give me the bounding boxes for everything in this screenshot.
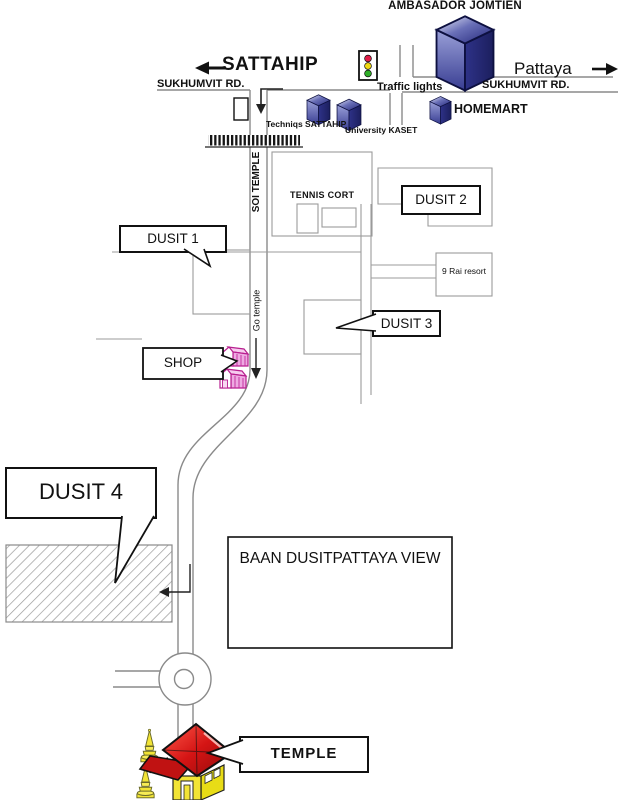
homemart-label: HOMEMART	[454, 103, 528, 116]
direction-east-label: Pattaya	[514, 60, 572, 78]
soi-temple-label: SOI TEMPLE	[252, 150, 264, 214]
tennis-courts	[297, 204, 356, 233]
building-cube-icon-homemart	[430, 96, 451, 124]
dusit4-label: DUSIT 4	[6, 480, 156, 503]
sukhumvit-rd-left-label: SUKHUMVIT RD.	[157, 79, 244, 91]
go-down-arrow-icon	[251, 338, 261, 379]
turn-into-soi-arrow-icon	[256, 89, 283, 114]
arrow-east-icon	[592, 63, 618, 75]
dusit4-land	[6, 545, 172, 622]
dusit3-label: DUSIT 3	[373, 317, 440, 331]
sukhumvit-rd-right-label: SUKHUMVIT RD.	[482, 80, 569, 92]
traffic-lights-label: Traffic lights	[377, 82, 442, 94]
baan-dusitpattaya-view-label: BAAN DUSITPATTAYA VIEW	[228, 551, 452, 567]
bus-stop-icon	[234, 98, 248, 120]
shop-label: SHOP	[143, 356, 223, 370]
direction-map: AMBASADOR JOMTIEN SATTAHIP Pattaya SUKHU…	[0, 0, 618, 800]
railroad-crossing-icon	[205, 135, 303, 147]
go-temple-label: Go temple	[253, 285, 264, 337]
dusit1-label: DUSIT 1	[120, 232, 226, 246]
tennis-court-label: TENNIS CORT	[290, 191, 354, 200]
dusit2-label: DUSIT 2	[402, 193, 480, 207]
university-kaset-label: University KASET	[345, 126, 417, 135]
temple-building-icon	[140, 724, 232, 800]
nine-rai-resort-label: 9 Rai resort	[436, 267, 492, 276]
techniqs-sattahip-label: Techniqs SATTAHIP	[266, 120, 346, 129]
direction-west-label: SATTAHIP	[222, 55, 318, 75]
temple-label: TEMPLE	[240, 746, 368, 762]
traffic-light-icon	[359, 51, 377, 80]
title-ambassador-jomtien: AMBASADOR JOMTIEN	[388, 0, 522, 12]
